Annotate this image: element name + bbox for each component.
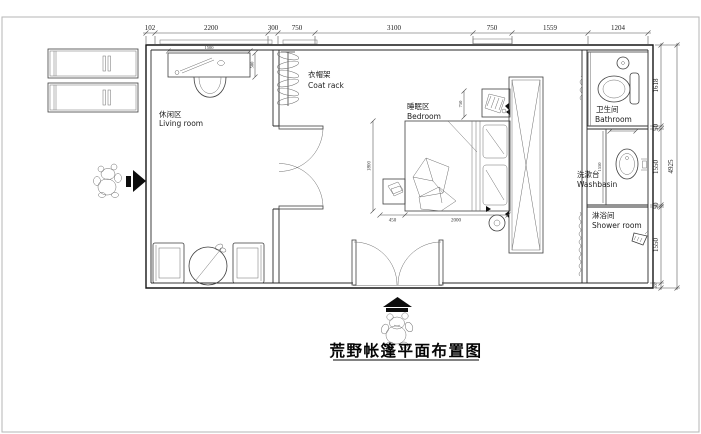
floor-plan-page: 102 2200 300 750 3100 750 1559 1204 1618… bbox=[0, 0, 701, 434]
dimension-chain-top: 102 2200 300 750 3100 750 1559 1204 bbox=[143, 24, 651, 44]
bedroom-label-zh: 睡眠区 bbox=[407, 102, 430, 111]
wardrobe bbox=[505, 77, 543, 253]
bear-sketch-left bbox=[94, 164, 122, 198]
dim-top-750b: 750 bbox=[487, 24, 498, 32]
shower-label-en: Shower room bbox=[592, 221, 642, 230]
desk-chair bbox=[194, 77, 226, 97]
dim-top-1559: 1559 bbox=[543, 24, 558, 32]
washbasin-label-zh: 洗漱台 bbox=[577, 169, 600, 179]
dim-bed-length: 1800 bbox=[368, 161, 373, 172]
floor-plan-drawing: 102 2200 300 750 3100 750 1559 1204 1618… bbox=[0, 0, 701, 434]
living-room-label-zh: 休闲区 bbox=[159, 109, 182, 119]
dim-right-total-4925: 4925 bbox=[667, 159, 675, 174]
dim-top-300: 300 bbox=[268, 24, 279, 32]
washbasin-label-en: Washbasin bbox=[577, 180, 618, 189]
interior-double-door bbox=[279, 126, 323, 209]
outer-walls bbox=[146, 39, 653, 288]
faucet-icon bbox=[643, 161, 647, 168]
dim-top-2200: 2200 bbox=[204, 24, 219, 32]
shower-curtain-squiggle bbox=[579, 212, 581, 276]
bathroom: 卫生间 Bathroom bbox=[580, 52, 648, 134]
toilet bbox=[598, 73, 639, 104]
washbasin-area: 1550 洗漱台 Washbasin bbox=[577, 129, 647, 205]
dim-top-1204: 1204 bbox=[611, 24, 626, 32]
bathroom-label-en: Bathroom bbox=[595, 115, 632, 124]
dimension-chain-right: 1618 50 1550 50 1550 107 4925 bbox=[650, 43, 680, 291]
lounge-chair-1 bbox=[48, 49, 138, 78]
dim-top-102: 102 bbox=[145, 24, 156, 32]
quilt-sketch bbox=[413, 158, 456, 211]
dim-desk-depth: 500 bbox=[250, 61, 255, 69]
drawing-title-text: 荒野帐篷平面布置图 bbox=[328, 341, 482, 360]
coat-rack: 衣帽架 Coat rack bbox=[277, 51, 345, 107]
shower-head-icon bbox=[632, 231, 648, 245]
bedroom-label-en: Bedroom bbox=[407, 112, 441, 121]
top-window-strip-2 bbox=[283, 40, 317, 44]
bedroom: 睡眠区 Bedroom bbox=[368, 77, 544, 253]
dim-nightstand: 450 bbox=[389, 219, 397, 224]
armchair-left bbox=[153, 243, 184, 283]
bedroom-dimensions: 1800 450 2000 750 bbox=[368, 89, 511, 224]
dim-desk-width: 1500 bbox=[205, 45, 215, 50]
entry-arrow-main-icon bbox=[383, 297, 412, 312]
armchair-right bbox=[233, 243, 264, 283]
stool-sketch bbox=[383, 179, 405, 204]
entry-arrow-left-icon bbox=[126, 170, 146, 192]
coat-rack-label-en: Coat rack bbox=[308, 81, 345, 90]
round-table bbox=[189, 243, 227, 285]
living-room: 休闲区 Living room 1500 500 bbox=[153, 45, 264, 285]
dim-top-750a: 750 bbox=[292, 24, 303, 32]
dim-bed-width: 2000 bbox=[451, 219, 462, 224]
top-window-strip-3 bbox=[473, 39, 512, 44]
shower-label-zh: 淋浴间 bbox=[592, 210, 615, 220]
top-window-strip-1 bbox=[160, 40, 272, 44]
bed bbox=[405, 121, 510, 211]
bathroom-label-zh: 卫生间 bbox=[596, 104, 619, 114]
dim-headboard-gap: 750 bbox=[458, 100, 463, 108]
bedside-lamp bbox=[486, 206, 505, 231]
dim-right-107: 107 bbox=[653, 281, 658, 289]
lounge-chair-2 bbox=[48, 83, 138, 112]
ceiling-light-icon bbox=[617, 57, 629, 69]
main-entrance-double-door bbox=[352, 240, 443, 285]
coat-rack-label-zh: 衣帽架 bbox=[308, 69, 331, 79]
nightstand-top bbox=[482, 89, 510, 117]
dim-top-3100: 3100 bbox=[387, 24, 402, 32]
washbasin bbox=[616, 149, 647, 179]
drawing-title: 荒野帐篷平面布置图 bbox=[328, 341, 482, 360]
shower-room: 淋浴间 Shower room bbox=[579, 210, 648, 276]
living-room-label-en: Living room bbox=[159, 119, 203, 128]
